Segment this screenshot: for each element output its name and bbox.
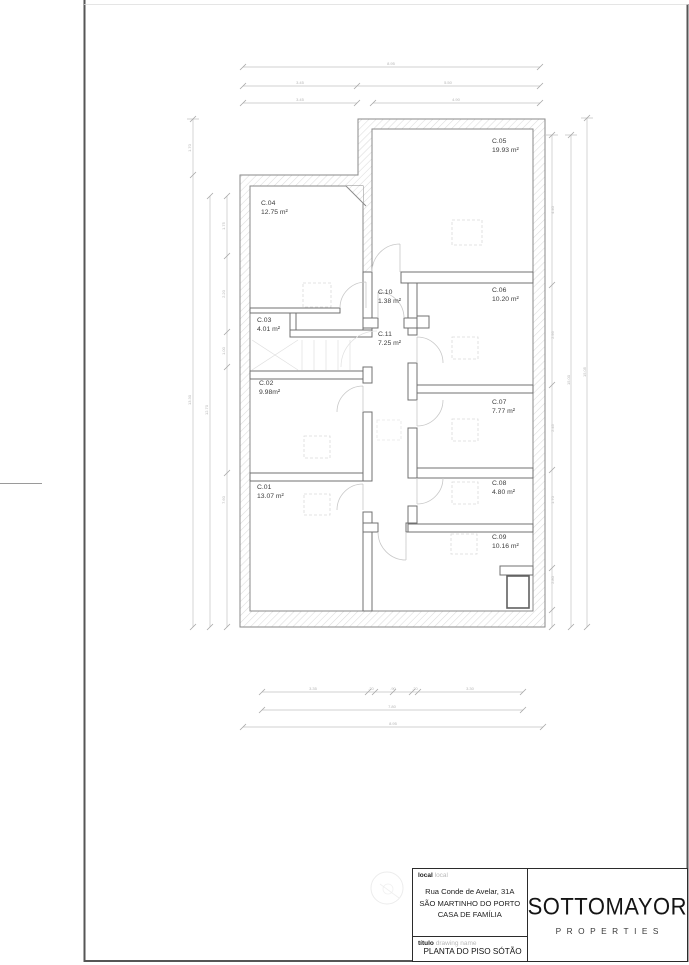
local-label: local local <box>418 872 522 879</box>
brand-logo: SOTTOMAYOR PROPERTIES <box>528 869 687 961</box>
dim-label: 8.95 <box>389 721 398 726</box>
brand-wordmark: SOTTOMAYOR <box>528 893 687 921</box>
wall-jog <box>500 566 533 575</box>
dim-label: 3.45 <box>296 97 305 102</box>
dim-label: 2.45 <box>550 423 555 432</box>
room-label-c11: C.11 <box>378 331 392 338</box>
door-c05 <box>372 244 400 272</box>
room-label-c06: C.06 <box>492 287 507 294</box>
door-c04 <box>340 282 366 308</box>
titulo-label: título drawing name <box>418 940 522 947</box>
dim-label: 5.50 <box>444 80 453 85</box>
titulo-label-pt: título <box>418 940 434 947</box>
watermark-circle <box>371 872 403 904</box>
dim-label: 3.30 <box>466 686 475 691</box>
dim-label: .20 <box>412 686 418 691</box>
project-address: Rua Conde de Avelar, 31A SÃO MARTINHO DO… <box>418 886 522 921</box>
wall-pilaster <box>417 316 429 328</box>
dim-label: 4.90 <box>452 97 461 102</box>
dim-label: 8.95 <box>387 61 396 66</box>
dim-label: 7.60 <box>221 495 226 504</box>
room-label-c10: C.10 <box>378 289 393 296</box>
dim-label: 2.80 <box>550 575 555 584</box>
dim-label: 15.05 <box>582 366 587 377</box>
floor-plan-svg: 8.95 3.45 5.50 3.45 4.90 3.35 .20 .90 .2… <box>0 0 689 965</box>
door-c07 <box>417 400 443 426</box>
titulo-section: título drawing name PLANTA DO PISO SÓTÃO <box>413 937 527 961</box>
door-c02 <box>337 386 363 412</box>
address-line-2: SÃO MARTINHO DO PORTO <box>418 898 522 910</box>
dim-label: 1.00 <box>221 346 226 355</box>
room-label-c08: C.08 <box>492 480 507 487</box>
dim-label: 4.40 <box>550 205 555 214</box>
sheet-frame <box>84 0 688 962</box>
dim-label: 1.75 <box>221 221 226 230</box>
dim-label: 13.30 <box>187 394 192 405</box>
room-label-c03: C.03 <box>257 317 272 324</box>
room-label-c05: C.05 <box>492 138 507 145</box>
title-block-left: local local Rua Conde de Avelar, 31A SÃO… <box>413 869 528 961</box>
drawing-sheet: 8.95 3.45 5.50 3.45 4.90 3.35 .20 .90 .2… <box>0 0 689 965</box>
dim-label: 1.70 <box>550 495 555 504</box>
title-block: local local Rua Conde de Avelar, 31A SÃO… <box>412 868 688 962</box>
room-area-c04: 12.75 m² <box>261 209 289 216</box>
address-line-1: Rua Conde de Avelar, 31A <box>418 886 522 898</box>
closet-duct <box>507 576 529 608</box>
dim-label: 15.00 <box>566 374 571 385</box>
brand-subtitle: PROPERTIES <box>551 926 664 936</box>
room-label-c07: C.07 <box>492 399 507 406</box>
dim-label: .90 <box>390 686 396 691</box>
dim-label: 1.70 <box>187 143 192 152</box>
door-c06 <box>417 337 443 363</box>
dim-label: 3.35 <box>309 686 318 691</box>
room-area-c10: 1.38 m² <box>378 298 402 305</box>
room-area-c11: 7.25 m² <box>378 340 402 347</box>
dim-label: 7.80 <box>388 704 397 709</box>
room-area-c09: 10.16 m² <box>492 543 520 550</box>
room-area-c01: 13.07 m² <box>257 493 285 500</box>
local-label-pt: local <box>418 872 433 879</box>
door-c09 <box>378 532 406 560</box>
door-c01 <box>337 484 363 510</box>
room-area-c05: 19.93 m² <box>492 147 520 154</box>
room-labels: C.01 13.07 m² C.02 9.98m² C.03 4.01 m² C… <box>257 138 520 550</box>
local-label-en: local <box>435 872 448 879</box>
room-area-c06: 10.20 m² <box>492 296 520 303</box>
local-section: local local Rua Conde de Avelar, 31A SÃO… <box>413 869 527 937</box>
room-area-c08: 4.80 m² <box>492 489 516 496</box>
room-label-c09: C.09 <box>492 534 507 541</box>
dim-label: 2.20 <box>221 289 226 298</box>
room-label-c04: C.04 <box>261 200 276 207</box>
room-label-c01: C.01 <box>257 484 272 491</box>
dim-label: 2.95 <box>550 330 555 339</box>
dim-label: 12.70 <box>204 404 209 415</box>
room-area-c07: 7.77 m² <box>492 408 516 415</box>
titulo-label-en: drawing name <box>436 940 477 947</box>
room-area-c02: 9.98m² <box>259 389 281 396</box>
room-label-c02: C.02 <box>259 380 274 387</box>
dim-label: 3.45 <box>296 80 305 85</box>
dim-label: .20 <box>368 686 374 691</box>
interior-walls <box>250 272 533 611</box>
door-c08 <box>417 478 443 504</box>
drawing-name: PLANTA DO PISO SÓTÃO <box>423 947 521 956</box>
address-line-3: CASA DE FAMÍLIA <box>418 909 522 921</box>
room-area-c03: 4.01 m² <box>257 326 281 333</box>
